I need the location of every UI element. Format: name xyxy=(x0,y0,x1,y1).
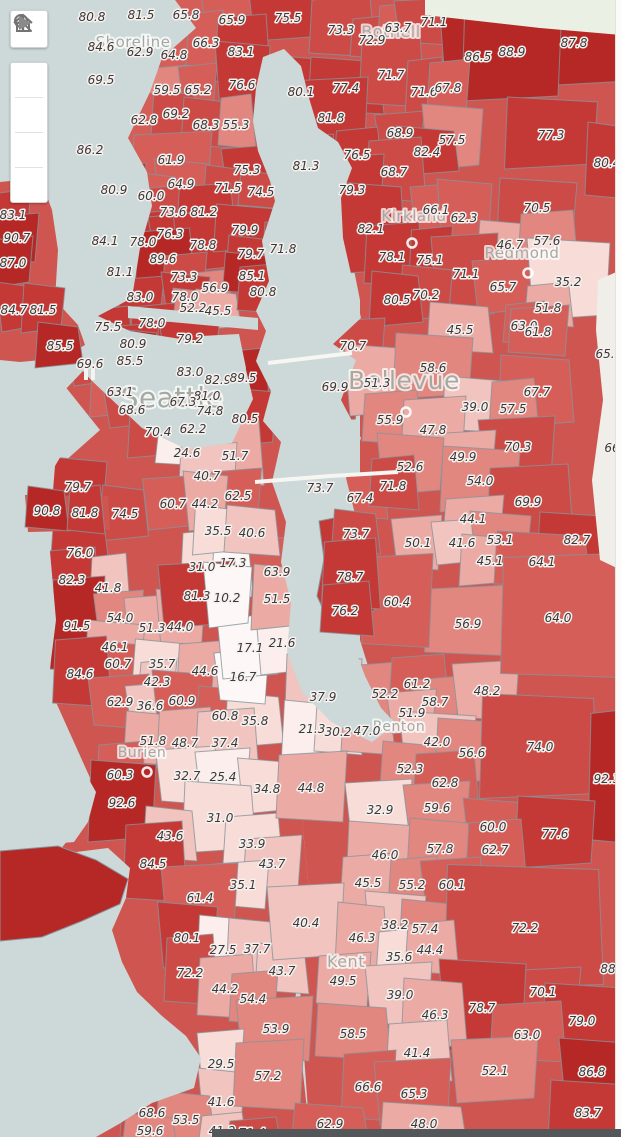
tract-value-label: 69.9 xyxy=(322,380,349,394)
tract-value-label: 80.8 xyxy=(250,285,277,299)
tract-value-label: 52.6 xyxy=(397,460,424,474)
tract-value-label: 37.4 xyxy=(212,736,239,750)
tract-value-label: 71.1 xyxy=(421,15,448,29)
tract-value-label: 78.8 xyxy=(190,238,217,252)
tract-value-label: 80.8 xyxy=(79,10,106,24)
tract-value-label: 82.7 xyxy=(564,533,591,547)
tract-value-label: 42.3 xyxy=(144,675,171,689)
tract-value-label: 54.0 xyxy=(467,474,494,488)
tract-value-label: 35.6 xyxy=(386,950,413,964)
tract-value-label: 66.1 xyxy=(423,203,450,217)
tract-value-label: 69.9 xyxy=(515,495,542,509)
tract-value-label: 44.2 xyxy=(212,982,239,996)
tract-value-label: 60.1 xyxy=(439,878,466,892)
tract-value-label: 75.1 xyxy=(417,253,444,267)
tract-value-label: 46.3 xyxy=(422,1008,449,1022)
tract-value-label: 72.9 xyxy=(359,33,386,47)
tract-value-label: 70.2 xyxy=(413,288,440,302)
tract-value-label: 51.3 xyxy=(364,376,391,390)
tract-value-label: 90.8 xyxy=(34,504,61,518)
tract-value-label: 51.5 xyxy=(264,592,291,606)
tract-value-label: 27.5 xyxy=(210,943,237,957)
bottom-window-edge xyxy=(212,1129,621,1137)
tract-value-label: 51.7 xyxy=(222,449,249,463)
tract-value-label: 74.5 xyxy=(112,507,139,521)
tract-value-label: 45.5 xyxy=(205,304,232,318)
tract-value-label: 74.8 xyxy=(197,404,224,418)
tract-value-label: 52.1 xyxy=(482,1064,509,1078)
tract-value-label: 51.8 xyxy=(535,301,562,315)
tract-value-label: 67.3 xyxy=(170,395,197,409)
tract-value-label: 60.4 xyxy=(384,595,411,609)
tract-value-label: 82.1 xyxy=(358,222,385,236)
tract-value-label: 81.0 xyxy=(194,389,221,403)
tract-value-label: 78.1 xyxy=(379,250,406,264)
tract-value-label: 32.9 xyxy=(367,803,394,817)
tract-value-label: 56.9 xyxy=(455,617,482,631)
tract-value-label: 76.2 xyxy=(332,604,359,618)
tract-value-label: 77.4 xyxy=(333,81,360,95)
tract-value-label: 71.8 xyxy=(270,242,297,256)
tract-value-label: 40.6 xyxy=(239,526,266,540)
tract-value-label: 36.6 xyxy=(137,699,164,713)
tract-value-label: 44.4 xyxy=(417,943,444,957)
city-label: Renton xyxy=(373,719,426,735)
tract-value-label: 84.6 xyxy=(67,667,94,681)
tract-value-label: 63.9 xyxy=(264,565,291,579)
tract-value-label: 65.9 xyxy=(219,13,246,27)
tract-value-label: 64.1 xyxy=(529,555,556,569)
tract-value-label: 82.3 xyxy=(59,573,86,587)
tract-value-label: 46.1 xyxy=(102,640,129,654)
tract-value-label: 83.7 xyxy=(575,1106,602,1120)
tract-value-label: 55.3 xyxy=(223,118,250,132)
tract-value-label: 67.7 xyxy=(524,385,551,399)
tract-value-label: 68.9 xyxy=(387,126,414,140)
tract-value-label: 87.8 xyxy=(561,36,588,50)
tract-value-label: 90.7 xyxy=(4,231,31,245)
tract-value-label: 80.1 xyxy=(288,85,315,99)
tract-value-label: 51.8 xyxy=(140,734,167,748)
tract-value-label: 91.5 xyxy=(64,619,91,633)
tract-value-label: 85.1 xyxy=(239,269,266,283)
tract-value-label: 57.4 xyxy=(412,922,439,936)
tract-value-label: 80.5 xyxy=(232,412,259,426)
tract-value-label: 86.5 xyxy=(465,50,492,64)
tract-value-label: 49.9 xyxy=(450,450,477,464)
tract-value-label: 77.6 xyxy=(542,827,569,841)
tract-value-label: 16.7 xyxy=(230,670,257,684)
tract-value-label: 38.2 xyxy=(382,918,409,932)
tract-value-label: 41.8 xyxy=(95,581,122,595)
tract-value-label: 25.4 xyxy=(210,770,237,784)
tract-value-label: 62.3 xyxy=(451,211,478,225)
map-toolbar xyxy=(10,10,48,203)
tract-value-label: 45.5 xyxy=(447,323,474,337)
tract-value-label: 51.3 xyxy=(139,621,166,635)
tract-value-label: 83.1 xyxy=(0,208,26,222)
tract-value-label: 60.7 xyxy=(105,657,132,671)
tract-value-label: 56.6 xyxy=(459,746,486,760)
tract-value-label: 64.8 xyxy=(161,48,188,62)
viewport-right-edge xyxy=(615,0,621,1137)
tract-value-label: 33.9 xyxy=(239,837,266,851)
tract-value-label: 17.3 xyxy=(220,556,247,570)
tract-value-label: 84.5 xyxy=(140,857,167,871)
tract-value-label: 62.9 xyxy=(107,695,134,709)
tract-value-label: 58.5 xyxy=(340,1027,367,1041)
tract-value-label: 62.2 xyxy=(180,422,207,436)
tract-value-label: 46.3 xyxy=(349,931,376,945)
tract-value-label: 81.8 xyxy=(72,506,99,520)
tract-value-label: 43.7 xyxy=(269,964,296,978)
tract-value-label: 70.7 xyxy=(340,339,367,353)
tract-value-label: 61.9 xyxy=(158,153,185,167)
map-viewport[interactable]: ShorelineBothellKirklandRedmondBellevueS… xyxy=(0,0,621,1137)
tract-value-label: 84.6 xyxy=(88,40,115,54)
tract-value-label: 42.0 xyxy=(424,735,451,749)
tract-value-label: 79.9 xyxy=(232,223,259,237)
tract-value-label: 31.0 xyxy=(189,560,216,574)
tract-value-label: 41.6 xyxy=(449,536,476,550)
tract-value-label: 85.5 xyxy=(47,339,74,353)
tract-value-label: 78.7 xyxy=(469,1001,496,1015)
tract-value-label: 66.6 xyxy=(355,1080,382,1094)
tract-value-label: 80.9 xyxy=(101,183,128,197)
tract-value-label: 88.9 xyxy=(499,45,526,59)
tract-value-label: 69.5 xyxy=(88,73,115,87)
tract-value-label: 81.5 xyxy=(30,303,57,317)
tract-value-label: 60.9 xyxy=(169,694,196,708)
tract-value-label: 10.2 xyxy=(214,591,241,605)
tract-value-label: 44.8 xyxy=(298,781,325,795)
tract-value-label: 83.0 xyxy=(177,365,204,379)
tract-value-label: 53.1 xyxy=(487,533,514,547)
tract-value-label: 71.7 xyxy=(378,68,405,82)
zoom-out-button[interactable] xyxy=(11,98,48,132)
tract-value-label: 86.2 xyxy=(77,143,104,157)
tract-value-label: 63.0 xyxy=(514,1028,541,1042)
tract-value-label: 40.7 xyxy=(194,469,221,483)
tract-value-label: 68.3 xyxy=(193,118,220,132)
tract-value-label: 84.1 xyxy=(92,234,119,248)
tract-value-label: 59.6 xyxy=(137,1124,164,1137)
tract-value-label: 79.7 xyxy=(238,247,265,261)
tract-value-label: 57.6 xyxy=(534,234,561,248)
tract-value-label: 56.9 xyxy=(202,281,229,295)
tract-value-label: 48.2 xyxy=(474,684,501,698)
tract-value-label: 69.2 xyxy=(163,107,190,121)
tract-value-label: 76.5 xyxy=(344,148,371,162)
tract-value-label: 43.7 xyxy=(259,857,286,871)
tract-value-label: 30.2 xyxy=(325,725,352,739)
tract-value-label: 29.5 xyxy=(208,1057,235,1071)
tract-value-label: 62.5 xyxy=(225,489,252,503)
tract-value-label: 82.4 xyxy=(414,145,441,159)
tract-value-label: 44.2 xyxy=(192,497,219,511)
tract-value-label: 40.4 xyxy=(293,916,320,930)
tract-value-label: 88 xyxy=(600,962,616,976)
tract-value-label: 75.5 xyxy=(275,11,302,25)
tract-value-label: 57.2 xyxy=(255,1069,282,1083)
tract-value-label: 24.6 xyxy=(174,446,201,460)
tract-value-label: 45.1 xyxy=(477,554,504,568)
tract-value-label: 81.3 xyxy=(293,159,320,173)
tract-value-label: 62.9 xyxy=(127,45,154,59)
tract-value-label: 79.3 xyxy=(339,183,366,197)
tract-value-label: 78.0 xyxy=(139,316,166,330)
tract-value-label: 62.8 xyxy=(131,113,158,127)
tract-value-label: 39.0 xyxy=(462,400,489,414)
tract-value-label: 62.8 xyxy=(432,776,459,790)
tract-value-label: 70.1 xyxy=(530,985,557,999)
tract-value-label: 71.1 xyxy=(453,267,480,281)
tract-value-label: 35.7 xyxy=(149,657,176,671)
tract-value-label: 89.5 xyxy=(230,371,257,385)
zoom-controls xyxy=(10,62,48,203)
tract-value-label: 21.6 xyxy=(269,636,296,650)
tract-value-label: 47.0 xyxy=(354,724,381,738)
tract-value-label: 65.3 xyxy=(401,1087,428,1101)
tract-value-label: 21.3 xyxy=(299,722,326,736)
tract-value-label: 55.2 xyxy=(399,878,426,892)
tract-value-label: 60.3 xyxy=(107,768,134,782)
tract-value-label: 89.6 xyxy=(150,252,177,266)
tract-value-label: 69.6 xyxy=(77,357,104,371)
tract-value-label: 76.6 xyxy=(229,78,256,92)
tract-value-label: 81.3 xyxy=(184,589,211,603)
tract-value-label: 50.1 xyxy=(405,536,432,550)
tract-value-label: 80.9 xyxy=(120,337,147,351)
tract-value-label: 80.1 xyxy=(174,931,201,945)
tract-value-label: 54.4 xyxy=(240,992,267,1006)
tract-value-label: 58.7 xyxy=(422,695,449,709)
tract-value-label: 74.5 xyxy=(248,185,275,199)
tract-value-label: 31.0 xyxy=(207,811,234,825)
tract-value-label: 75.3 xyxy=(234,163,261,177)
tract-value-label: 46.7 xyxy=(497,238,524,252)
tract-value-label: 35.2 xyxy=(555,275,582,289)
tract-value-label: 46.0 xyxy=(372,848,399,862)
tract-value-label: 48.7 xyxy=(172,736,199,750)
tract-value-label: 54.0 xyxy=(107,611,134,625)
tract-value-label: 81.2 xyxy=(191,205,218,219)
tract-value-label: 62.7 xyxy=(482,843,509,857)
tract-value-label: 17.1 xyxy=(237,641,264,655)
tract-value-label: 52.2 xyxy=(372,687,399,701)
tract-value-label: 68.6 xyxy=(119,403,146,417)
tract-value-label: 83.0 xyxy=(127,290,154,304)
tract-value-label: 59.5 xyxy=(154,83,181,97)
choropleth-map[interactable]: ShorelineBothellKirklandRedmondBellevueS… xyxy=(0,0,621,1137)
tract-value-label: 45.5 xyxy=(355,876,382,890)
tract-value-label: 82.9 xyxy=(205,373,232,387)
tract-value-label: 67.8 xyxy=(435,81,462,95)
tract-value-label: 73.7 xyxy=(307,481,334,495)
tract-value-label: 35.1 xyxy=(230,878,257,892)
tract-value-label: 61.4 xyxy=(187,891,214,905)
tract-value-label: 79.7 xyxy=(65,480,92,494)
tract-value-label: 37.9 xyxy=(310,690,337,704)
tract-value-label: 76.3 xyxy=(157,227,184,241)
tract-value-label: 77.3 xyxy=(538,128,565,142)
tract-value-label: 73.3 xyxy=(171,270,198,284)
tract-value-label: 78.0 xyxy=(130,235,157,249)
tract-value-label: 79.2 xyxy=(177,332,204,346)
tract-value-label: 41.6 xyxy=(208,1095,235,1109)
tract-value-label: 73.3 xyxy=(328,23,355,37)
tract-value-label: 57.5 xyxy=(439,133,466,147)
tract-value-label: 61.2 xyxy=(404,677,431,691)
tract-value-label: 32.7 xyxy=(174,769,201,783)
tract-value-label: 60.0 xyxy=(138,189,165,203)
tract-value-label: 71.5 xyxy=(215,181,242,195)
tract-value-label: 81.8 xyxy=(318,111,345,125)
tract-value-label: 47.8 xyxy=(420,423,447,437)
tract-value-label: 34.8 xyxy=(254,782,281,796)
tract-value-label: 85.5 xyxy=(117,354,144,368)
tract-value-label: 65.8 xyxy=(173,8,200,22)
tract-value-label: 78.7 xyxy=(337,570,364,584)
tract-value-label: 52.2 xyxy=(180,301,207,315)
tract-value-label: 64.9 xyxy=(168,177,195,191)
tract-value-label: 59.6 xyxy=(424,801,451,815)
tract-value-label: 44.0 xyxy=(167,620,194,634)
tract-value-label: 52.3 xyxy=(397,762,424,776)
tract-value-label: 74.0 xyxy=(527,740,554,754)
tract-value-label: 53.5 xyxy=(173,1113,200,1127)
tract-value-label: 60.8 xyxy=(212,709,239,723)
tract-value-label: 70.4 xyxy=(145,425,172,439)
tract-value-label: 66.3 xyxy=(193,36,220,50)
tract-value-label: 41.4 xyxy=(404,1046,431,1060)
tract-value-label: 81.5 xyxy=(128,8,155,22)
tract-value-label: 35.5 xyxy=(205,524,232,538)
tract-value-label: 60.7 xyxy=(160,497,187,511)
tract-value-label: 44.6 xyxy=(192,664,219,678)
tract-value-label: 51.9 xyxy=(399,706,426,720)
tract-value-label: 71.8 xyxy=(380,479,407,493)
tract-value-label: 70.3 xyxy=(505,440,532,454)
tract-value-label: 75.5 xyxy=(95,320,122,334)
tract-value-label: 57.5 xyxy=(500,402,527,416)
tract-value-label: 70.5 xyxy=(524,201,551,215)
zoom-in-button[interactable] xyxy=(11,63,48,97)
tract-value-label: 80.5 xyxy=(384,293,411,307)
tract-value-label: 63.7 xyxy=(385,21,412,35)
tract-value-label: 53.9 xyxy=(263,1022,290,1036)
tract-value-label: 92.6 xyxy=(109,796,136,810)
tract-value-label: 79.0 xyxy=(569,1014,596,1028)
tract-value-label: 87.0 xyxy=(0,256,27,270)
tract-value-label: 43.6 xyxy=(157,829,184,843)
tract-value-label: 63.1 xyxy=(107,385,134,399)
pan-button[interactable] xyxy=(11,168,48,202)
tract-value-label: 68.6 xyxy=(139,1106,166,1120)
tract-value-label: 81.1 xyxy=(107,265,134,279)
tract-value-label: 65.7 xyxy=(490,280,517,294)
tract-value-label: 73.7 xyxy=(343,527,370,541)
tract-value-label: 72.2 xyxy=(512,921,539,935)
tract-value-label: 65.2 xyxy=(185,83,212,97)
tract-value-label: 83.1 xyxy=(228,45,255,59)
tract-value-label: 65. xyxy=(595,347,614,361)
tract-value-label: 58.6 xyxy=(420,361,447,375)
tract-value-label: 67.4 xyxy=(347,491,374,505)
tract-value-label: 60.0 xyxy=(480,820,507,834)
tract-value-label: 55.9 xyxy=(377,413,404,427)
tract-value-label: 35.8 xyxy=(242,714,269,728)
city-label: Kent xyxy=(327,952,365,971)
tract-value-label: 61.8 xyxy=(525,325,552,339)
tract-value-label: 84.7 xyxy=(1,303,28,317)
tract-value-label: 64.0 xyxy=(545,611,572,625)
tract-value-label: 86.8 xyxy=(579,1065,606,1079)
home-button[interactable] xyxy=(11,133,48,167)
tract-value-label: 49.5 xyxy=(330,974,357,988)
tract-value-label: 57.8 xyxy=(427,842,454,856)
tract-value-label: 39.0 xyxy=(387,988,414,1002)
tract-value-label: 68.7 xyxy=(381,165,408,179)
tract-value-label: 37.7 xyxy=(244,942,271,956)
tract-value-label: 44.1 xyxy=(460,512,487,526)
tract-value-label: 73.6 xyxy=(160,205,187,219)
tract-value-label: 72.2 xyxy=(177,966,204,980)
tract-value-label: 76.0 xyxy=(67,546,94,560)
